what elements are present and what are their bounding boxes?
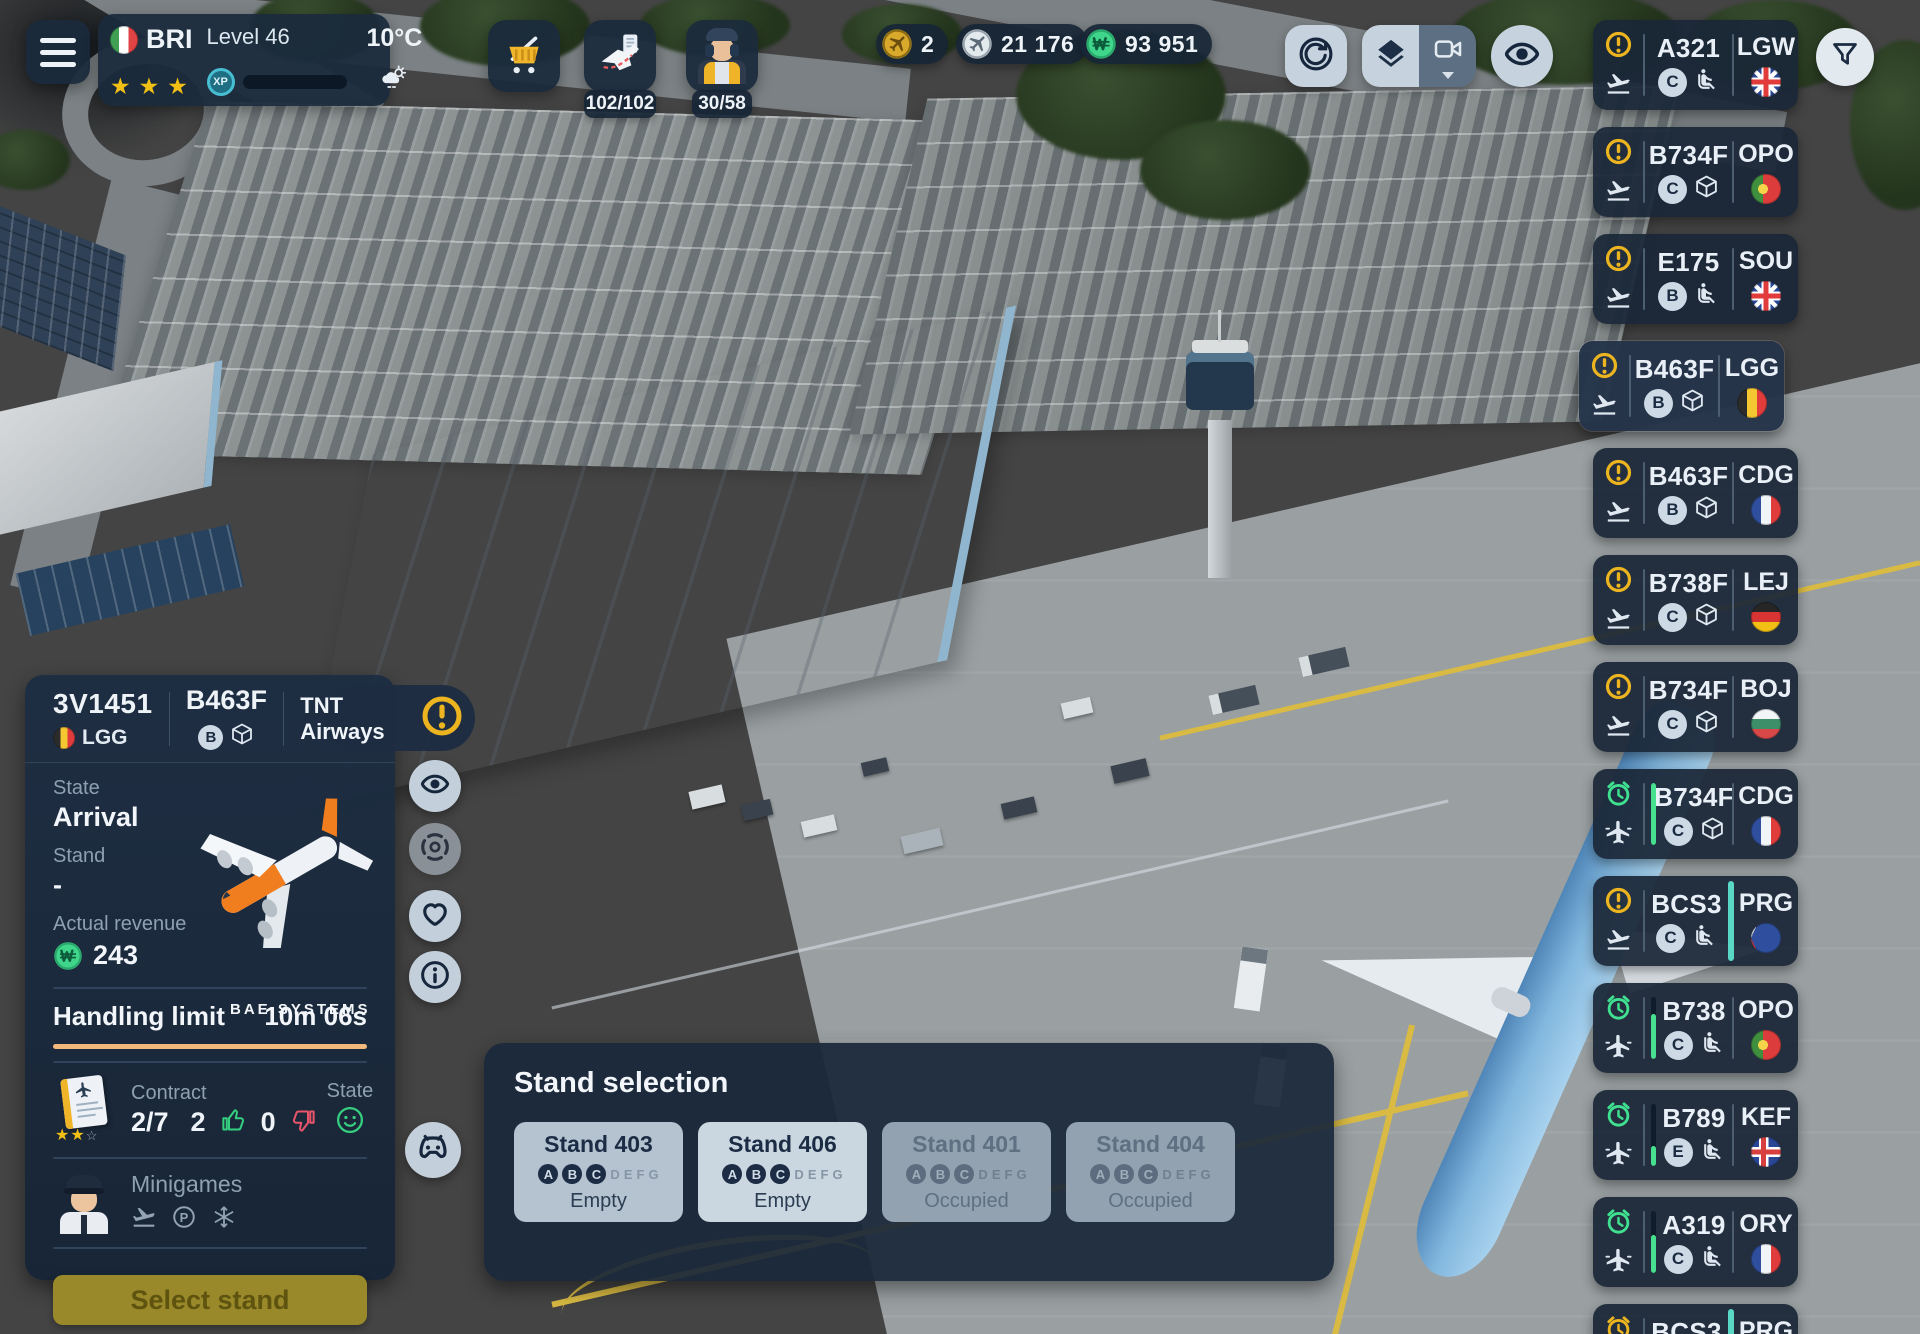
alarm-clock-icon — [1603, 992, 1634, 1028]
snowflake-icon[interactable] — [211, 1204, 237, 1235]
fleet-button[interactable] — [584, 20, 656, 92]
flight-list-item-A321-LGW[interactable]: A321 C LGW — [1593, 20, 1798, 110]
stand-size-letters: ABCDEFG — [722, 1164, 842, 1184]
airport-code: SOU — [1739, 247, 1793, 276]
star-icon: ★ — [110, 76, 131, 96]
dislikes-count: 0 — [261, 1107, 276, 1138]
visibility-button[interactable] — [1491, 25, 1553, 87]
cargo-icon — [1680, 388, 1705, 418]
stand-name: Stand 406 — [728, 1131, 837, 1158]
flag-belgium-icon — [53, 727, 75, 749]
xp-badge-icon: XP — [207, 68, 235, 96]
alarm-clock-icon — [1603, 1313, 1634, 1334]
gold-planes-balance[interactable]: 2 — [876, 24, 948, 64]
wollar-coin-icon — [1085, 28, 1117, 60]
flight-list-item-B789-KEF[interactable]: B789 E KEF — [1593, 1090, 1798, 1180]
staff-counter: 30/58 — [692, 90, 752, 118]
stand-letter-C: C — [770, 1164, 790, 1184]
size-class-badge: C — [1658, 603, 1687, 632]
wollar-coin-icon — [53, 941, 83, 971]
aircraft-type: A321 — [1657, 33, 1720, 64]
favorite-button[interactable] — [409, 890, 461, 942]
aircraft-type: B738F — [1649, 568, 1729, 599]
flag-de-icon — [1751, 602, 1781, 632]
divider — [283, 692, 284, 746]
airport-flag-italy-icon — [110, 26, 138, 54]
stand-letter-F: F — [1004, 1167, 1012, 1182]
aircraft-type: B734F — [1649, 675, 1729, 706]
size-class-badge: C — [1656, 924, 1685, 953]
cart-icon — [499, 29, 549, 84]
video-camera-button[interactable] — [1419, 25, 1476, 87]
stand-letter-A: A — [1090, 1164, 1110, 1184]
video-camera-icon — [1432, 33, 1464, 70]
flight-list-item-B734F-CDG[interactable]: B734F C CDG — [1593, 769, 1798, 859]
gold-plane-coin-icon — [881, 28, 913, 60]
flight-list-item-B463F-LGG[interactable]: B463F B LGG — [1579, 341, 1784, 431]
stand-letter-E: E — [1176, 1167, 1185, 1182]
alarm-clock-icon — [1603, 778, 1634, 814]
cargo-icon — [230, 722, 254, 752]
aircraft-type: E175 — [1658, 247, 1720, 278]
approach-progress-bar — [1651, 997, 1656, 1059]
stand-letter-B: B — [1114, 1164, 1134, 1184]
temperature: 10°C — [367, 24, 423, 53]
stand-letter-B: B — [746, 1164, 766, 1184]
divider — [53, 1157, 367, 1159]
airport-code: BRI — [146, 24, 193, 55]
star-icon: ★ — [70, 1127, 85, 1144]
silver-plane-coin-icon — [961, 28, 993, 60]
silver-planes-balance[interactable]: 21 176 — [956, 24, 1088, 64]
contract-icon: ★★☆ — [53, 1075, 117, 1145]
flight-detail-panel: 3V1451 LGG B463F B TNT Airways — [25, 675, 395, 1280]
eye-icon — [1500, 32, 1544, 81]
cargo-icon — [1694, 174, 1719, 204]
aircraft-image — [165, 793, 400, 953]
stand-letter-F: F — [636, 1167, 644, 1182]
flight-header: 3V1451 LGG B463F B TNT Airways — [25, 675, 395, 763]
fleet-plane-icon — [594, 28, 646, 85]
select-stand-button[interactable]: Select stand — [53, 1275, 367, 1325]
flight-list-item-B734F-OPO[interactable]: B734F C OPO — [1593, 127, 1798, 217]
plane-inflight-icon — [1605, 1140, 1632, 1172]
warning-icon — [1603, 136, 1634, 172]
approach-progress-bar — [1651, 1211, 1656, 1273]
size-class-badge: B — [1658, 496, 1687, 525]
airport-code: CDG — [1738, 461, 1794, 490]
stand-status: Occupied — [924, 1190, 1009, 1213]
flag-uk-icon — [1751, 281, 1781, 311]
contract-state-label: State — [327, 1080, 374, 1103]
approach-progress-bar — [1651, 1104, 1656, 1166]
stand-name: Stand 401 — [912, 1131, 1021, 1158]
reset-view-icon — [1295, 33, 1337, 80]
filter-funnel-icon — [1827, 37, 1863, 78]
info-icon — [417, 957, 453, 998]
stand-letter-G: G — [832, 1167, 842, 1182]
smiley-icon — [335, 1105, 365, 1140]
stand-size-letters: ABCDEFG — [538, 1164, 658, 1184]
plane-inflight-icon — [1605, 819, 1632, 851]
game-screen: BRI ★★★ Level 46 XP 10°C 102/102 — [0, 0, 1920, 1334]
airport-code: ORY — [1739, 1210, 1792, 1239]
plane-landing-icon — [1605, 284, 1632, 316]
stand-letter-F: F — [820, 1167, 828, 1182]
flag-is-icon — [1751, 1137, 1781, 1167]
reset-view-button[interactable] — [1285, 25, 1347, 87]
airport-code: LGW — [1737, 33, 1795, 62]
plane-landing-icon — [1605, 70, 1632, 102]
plane-inflight-icon — [1605, 1247, 1632, 1279]
stand-letter-G: G — [648, 1167, 658, 1182]
plane-landing-icon — [1605, 605, 1632, 637]
airport-hud-panel[interactable]: BRI ★★★ Level 46 XP 10°C — [98, 14, 390, 106]
plane-landing-icon — [1591, 391, 1618, 423]
chevron-down-icon — [1442, 72, 1454, 79]
flight-list-item-E175-SOU[interactable]: E175 B SOU — [1593, 234, 1798, 324]
aircraft-type: A319 — [1662, 1210, 1725, 1241]
pax-icon — [1692, 923, 1717, 953]
cargo-icon — [1694, 602, 1719, 632]
warning-icon — [1603, 564, 1634, 600]
stand-letter-B: B — [562, 1164, 582, 1184]
stand-letter-E: E — [624, 1167, 633, 1182]
airport-code: LEJ — [1743, 568, 1789, 597]
aircraft-type: B738 — [1662, 996, 1725, 1027]
minigames-label: Minigames — [131, 1171, 242, 1198]
stand-letter-B: B — [930, 1164, 950, 1184]
wollars-balance[interactable]: 93 951 — [1080, 24, 1212, 64]
size-class-badge: C — [1658, 68, 1687, 97]
info-button[interactable] — [409, 951, 461, 1003]
landing-icon[interactable] — [131, 1204, 157, 1235]
flag-bg-icon — [1751, 709, 1781, 739]
stand-letter-D: D — [610, 1167, 619, 1182]
stand-letter-A: A — [906, 1164, 926, 1184]
pax-icon — [1694, 67, 1719, 97]
aircraft-type: B463F — [1649, 461, 1729, 492]
gamepad-icon — [413, 1128, 453, 1173]
warning-icon — [1603, 885, 1634, 921]
contract-label: Contract — [131, 1082, 317, 1105]
airport-code: LGG — [1725, 354, 1779, 383]
staff-button[interactable] — [686, 20, 758, 92]
stand-letter-C: C — [586, 1164, 606, 1184]
handling-label: Handling limit — [53, 1001, 225, 1032]
flight-filter-button[interactable] — [1816, 28, 1874, 86]
flight-number: 3V1451 — [53, 688, 153, 720]
airline-name: TNT Airways — [300, 693, 389, 745]
heart-icon — [418, 897, 452, 936]
warning-icon — [1589, 350, 1620, 386]
alarm-clock-icon — [1603, 1206, 1634, 1242]
divider — [53, 1061, 367, 1063]
divider — [53, 1247, 367, 1249]
flag-uk-icon — [1751, 67, 1781, 97]
divider — [1643, 1211, 1645, 1273]
stand-status: Empty — [754, 1190, 811, 1213]
stand-status: Occupied — [1108, 1190, 1193, 1213]
contract-row[interactable]: ★★☆ Contract 2/7 2 0 — [53, 1075, 367, 1145]
hamburger-icon — [40, 38, 76, 43]
stand-size-letters: ABCDEFG — [906, 1164, 1026, 1184]
tower-antenna — [1218, 310, 1221, 342]
contract-star-rating: ★★☆ — [55, 1125, 98, 1145]
flight-list-item-B738-OPO[interactable]: B738 C OPO — [1593, 983, 1798, 1073]
cargo-icon — [1700, 816, 1725, 846]
aircraft-type: B463F — [186, 685, 267, 716]
warning-icon — [1603, 457, 1634, 493]
alarm-clock-icon — [1603, 1099, 1634, 1135]
trees — [1140, 120, 1310, 220]
stand-card-stand-404: Stand 404 ABCDEFG Occupied — [1066, 1122, 1235, 1222]
plane-landing-icon — [1605, 177, 1632, 209]
pax-icon — [1694, 281, 1719, 311]
airport-code: OPO — [1738, 996, 1794, 1025]
airport-code: PRG — [1739, 889, 1793, 918]
airport-star-rating: ★★★ — [110, 76, 193, 96]
airport-code: CDG — [1738, 782, 1794, 811]
flag-pt-icon — [1751, 1030, 1781, 1060]
stand-card-stand-406[interactable]: Stand 406 ABCDEFG Empty — [698, 1122, 867, 1222]
aircraft-type: B734F — [1649, 140, 1729, 171]
stand-letter-E: E — [992, 1167, 1001, 1182]
size-class-badge: B — [1644, 389, 1673, 418]
stand-selection-title: Stand selection — [514, 1067, 1304, 1100]
stand-cards: Stand 403 ABCDEFG EmptyStand 406 ABCDEFG… — [514, 1122, 1304, 1222]
flight-list-item-B463F-CDG[interactable]: B463F B CDG — [1593, 448, 1798, 538]
warning-icon — [1603, 243, 1634, 279]
thumbs-down-icon — [290, 1107, 317, 1139]
flag-fr-icon — [1751, 816, 1781, 846]
parking-icon[interactable]: P — [171, 1204, 197, 1235]
layers-view-button[interactable] — [1362, 25, 1419, 87]
divider — [1643, 997, 1645, 1059]
origin-code: LGG — [82, 726, 128, 750]
airport-code: PRG — [1739, 1317, 1793, 1334]
watch-flight-button[interactable] — [409, 760, 461, 812]
aircraft-type: B789 — [1662, 1103, 1725, 1134]
airport-code: KEF — [1741, 1103, 1791, 1132]
flag-pt-icon — [1751, 174, 1781, 204]
service-vehicle — [688, 784, 725, 809]
aircraft-type: BCS3 — [1651, 1317, 1722, 1334]
flight-list-item-BCS3-PRG[interactable]: BCS3 C PRG — [1593, 876, 1798, 966]
stand-name: Stand 403 — [544, 1131, 653, 1158]
cargo-icon — [1694, 709, 1719, 739]
aircraft-type: B463F — [1635, 354, 1715, 385]
pax-icon — [1700, 1030, 1725, 1060]
size-class-badge: B — [198, 725, 223, 750]
stand-card-stand-401: Stand 401 ABCDEFG Occupied — [882, 1122, 1051, 1222]
flight-list-item-B734F-BOJ[interactable]: B734F C BOJ — [1593, 662, 1798, 752]
aircraft-type: B734F — [1654, 782, 1734, 813]
revenue-value: 243 — [93, 940, 138, 971]
cargo-icon — [1694, 495, 1719, 525]
warning-icon — [1603, 671, 1634, 707]
flight-list-item-B738F-LEJ[interactable]: B738F C LEJ — [1593, 555, 1798, 645]
size-class-badge: C — [1664, 817, 1693, 846]
ramp-agent-icon — [694, 28, 750, 84]
eye-icon — [417, 766, 453, 807]
camera-mode-toggle[interactable] — [1362, 25, 1476, 87]
stand-letter-A: A — [722, 1164, 742, 1184]
likes-count: 2 — [191, 1107, 206, 1138]
livery-brand: BAE SYSTEMS — [230, 1001, 371, 1018]
star-icon: ★ — [167, 76, 188, 96]
stand-letter-G: G — [1200, 1167, 1210, 1182]
minigame-launch-button[interactable] — [405, 1122, 461, 1178]
level-label: Level 46 — [207, 24, 347, 50]
stand-letter-D: D — [978, 1167, 987, 1182]
plane-landing-icon — [1605, 712, 1632, 744]
layers-icon — [1374, 37, 1408, 76]
divider — [53, 987, 367, 989]
xp-progress-bar — [243, 75, 347, 89]
stand-status: Empty — [570, 1190, 627, 1213]
divider — [1643, 1104, 1645, 1166]
tower-cab — [1186, 352, 1254, 410]
stand-selection-panel: Stand selection Stand 403 ABCDEFG EmptyS… — [484, 1043, 1334, 1281]
flag-fr-icon — [1751, 1244, 1781, 1274]
star-icon: ☆ — [86, 1128, 99, 1143]
stand-card-stand-403[interactable]: Stand 403 ABCDEFG Empty — [514, 1122, 683, 1222]
stand-letter-F: F — [1188, 1167, 1196, 1182]
minigames-row[interactable]: Minigames P — [53, 1171, 367, 1235]
flag-fr-icon — [1751, 495, 1781, 525]
size-class-badge: C — [1664, 1245, 1693, 1274]
size-class-badge: C — [1664, 1031, 1693, 1060]
stand-name: Stand 404 — [1096, 1131, 1205, 1158]
control-tower — [1208, 420, 1232, 578]
stand-letter-D: D — [1162, 1167, 1171, 1182]
size-class-badge: C — [1658, 710, 1687, 739]
aircraft-type: BCS3 — [1651, 889, 1722, 920]
pax-icon — [1700, 1244, 1725, 1274]
flag-cz-icon — [1751, 923, 1781, 953]
size-class-badge: C — [1658, 175, 1687, 204]
contract-progress: 2/7 — [131, 1107, 169, 1138]
warning-icon — [418, 692, 466, 745]
flight-list-item-BCS3-PRG[interactable]: BCS3 C PRG — [1593, 1304, 1798, 1334]
stand-letter-G: G — [1016, 1167, 1026, 1182]
pax-icon — [1700, 1137, 1725, 1167]
star-icon: ★ — [55, 1127, 70, 1144]
camera-follow-icon — [417, 829, 453, 870]
thumbs-up-icon — [220, 1107, 247, 1139]
airport-code: OPO — [1738, 140, 1794, 169]
stand-letter-C: C — [954, 1164, 974, 1184]
airport-code: BOJ — [1740, 675, 1791, 704]
stand-letter-C: C — [1138, 1164, 1158, 1184]
stand-size-letters: ABCDEFG — [1090, 1164, 1210, 1184]
warning-icon — [1603, 29, 1634, 65]
flight-list-item-A319-ORY[interactable]: A319 C ORY — [1593, 1197, 1798, 1287]
flag-be-icon — [1737, 388, 1767, 418]
pilot-avatar — [53, 1172, 115, 1234]
stand-letter-D: D — [794, 1167, 803, 1182]
menu-button[interactable] — [26, 20, 90, 84]
divider — [1643, 783, 1645, 845]
plane-landing-icon — [1605, 498, 1632, 530]
building — [0, 360, 222, 540]
size-class-badge: B — [1658, 282, 1687, 311]
plane-landing-icon — [1605, 926, 1632, 958]
weather-icon — [380, 63, 408, 96]
plane-inflight-icon — [1605, 1033, 1632, 1065]
divider — [169, 692, 170, 746]
star-icon: ★ — [139, 76, 160, 96]
aircraft-counter: 102/102 — [584, 90, 656, 118]
approach-progress-bar — [1651, 783, 1656, 845]
camera-follow-button[interactable] — [409, 823, 461, 875]
size-class-badge: E — [1664, 1138, 1693, 1167]
stand-letter-A: A — [538, 1164, 558, 1184]
stand-letter-E: E — [808, 1167, 817, 1182]
flight-list: A321 C LGW B734F C OPO — [1593, 20, 1813, 1334]
svg-text:P: P — [180, 1210, 189, 1225]
minigame-icons: P — [131, 1204, 242, 1235]
shop-button[interactable] — [488, 20, 560, 92]
handling-progress-bar — [53, 1044, 367, 1049]
